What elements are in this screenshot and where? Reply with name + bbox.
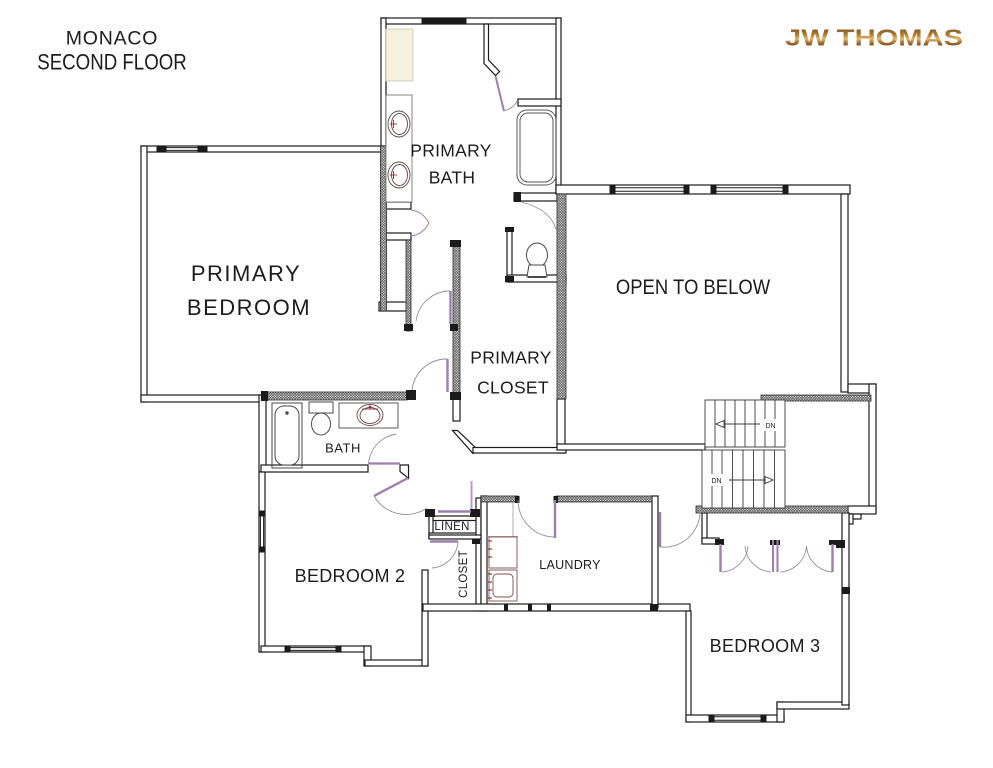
- svg-text:PRIMARY: PRIMARY: [410, 141, 492, 161]
- svg-text:BATH: BATH: [325, 441, 361, 456]
- svg-text:CLOSET: CLOSET: [477, 378, 549, 398]
- svg-text:PRIMARY: PRIMARY: [470, 348, 552, 368]
- svg-text:MONACO: MONACO: [66, 28, 159, 50]
- svg-text:DN: DN: [711, 478, 721, 485]
- svg-text:LINEN: LINEN: [434, 521, 469, 533]
- svg-text:BEDROOM 3: BEDROOM 3: [710, 636, 821, 656]
- svg-text:SECOND FLOOR: SECOND FLOOR: [37, 51, 187, 75]
- svg-text:PRIMARY: PRIMARY: [191, 261, 301, 286]
- svg-text:LAUNDRY: LAUNDRY: [539, 558, 601, 572]
- svg-text:BEDROOM: BEDROOM: [187, 295, 311, 320]
- svg-text:BATH: BATH: [429, 168, 476, 188]
- svg-text:BEDROOM 2: BEDROOM 2: [295, 566, 406, 586]
- svg-text:OPEN TO BELOW: OPEN TO BELOW: [616, 276, 771, 299]
- svg-text:CLOSET: CLOSET: [458, 550, 470, 598]
- svg-text:DN: DN: [765, 423, 775, 430]
- svg-text:JW THOMAS: JW THOMAS: [785, 25, 963, 51]
